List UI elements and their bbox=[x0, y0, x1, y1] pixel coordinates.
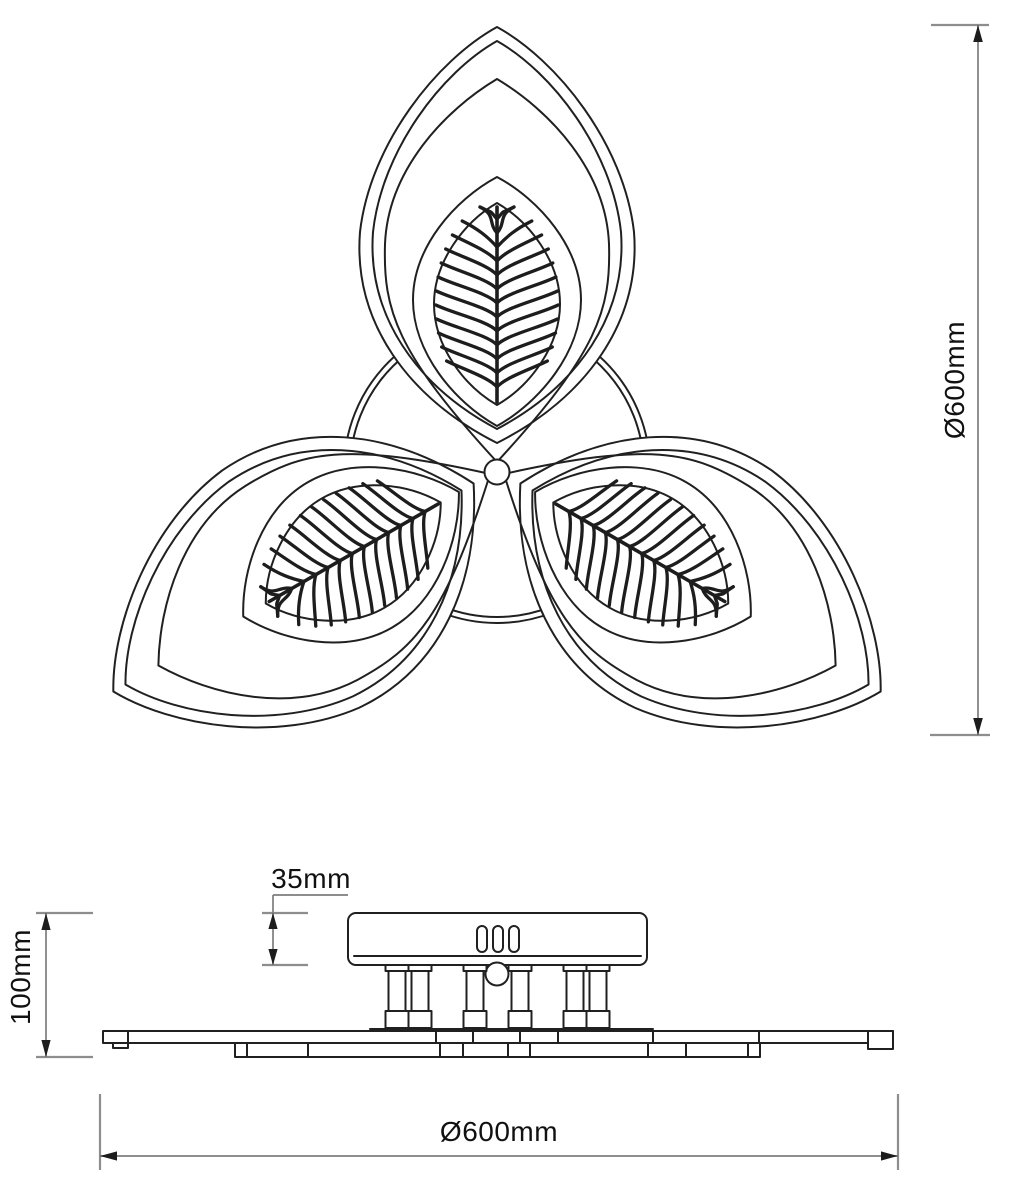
center-hole bbox=[485, 460, 510, 485]
driver-bump bbox=[486, 963, 509, 986]
overall-width-label: Ø600mm bbox=[440, 1116, 558, 1147]
panel-right-cap bbox=[868, 1031, 893, 1049]
canopy bbox=[348, 913, 647, 965]
panel-lower-plate bbox=[235, 1043, 760, 1057]
dimension-canopy-height: 35mm bbox=[262, 863, 351, 965]
overall-height-label: 100mm bbox=[5, 929, 36, 1025]
top-view-diameter-label: Ø600mm bbox=[939, 321, 970, 439]
drawing-sheet: Ø600mm bbox=[0, 0, 1015, 1190]
light-panel bbox=[103, 1029, 893, 1057]
technical-drawing-canvas: Ø600mm bbox=[0, 0, 1015, 1190]
side-view bbox=[103, 913, 893, 1057]
dimension-top-view-diameter: Ø600mm bbox=[930, 25, 990, 735]
canopy-height-label: 35mm bbox=[271, 863, 351, 894]
dimension-overall-height: 100mm bbox=[5, 913, 93, 1057]
leaf-arm-top bbox=[359, 27, 634, 462]
dimension-overall-width: Ø600mm bbox=[100, 1094, 898, 1170]
panel-left-lip bbox=[113, 1043, 128, 1048]
top-view bbox=[45, 27, 950, 811]
